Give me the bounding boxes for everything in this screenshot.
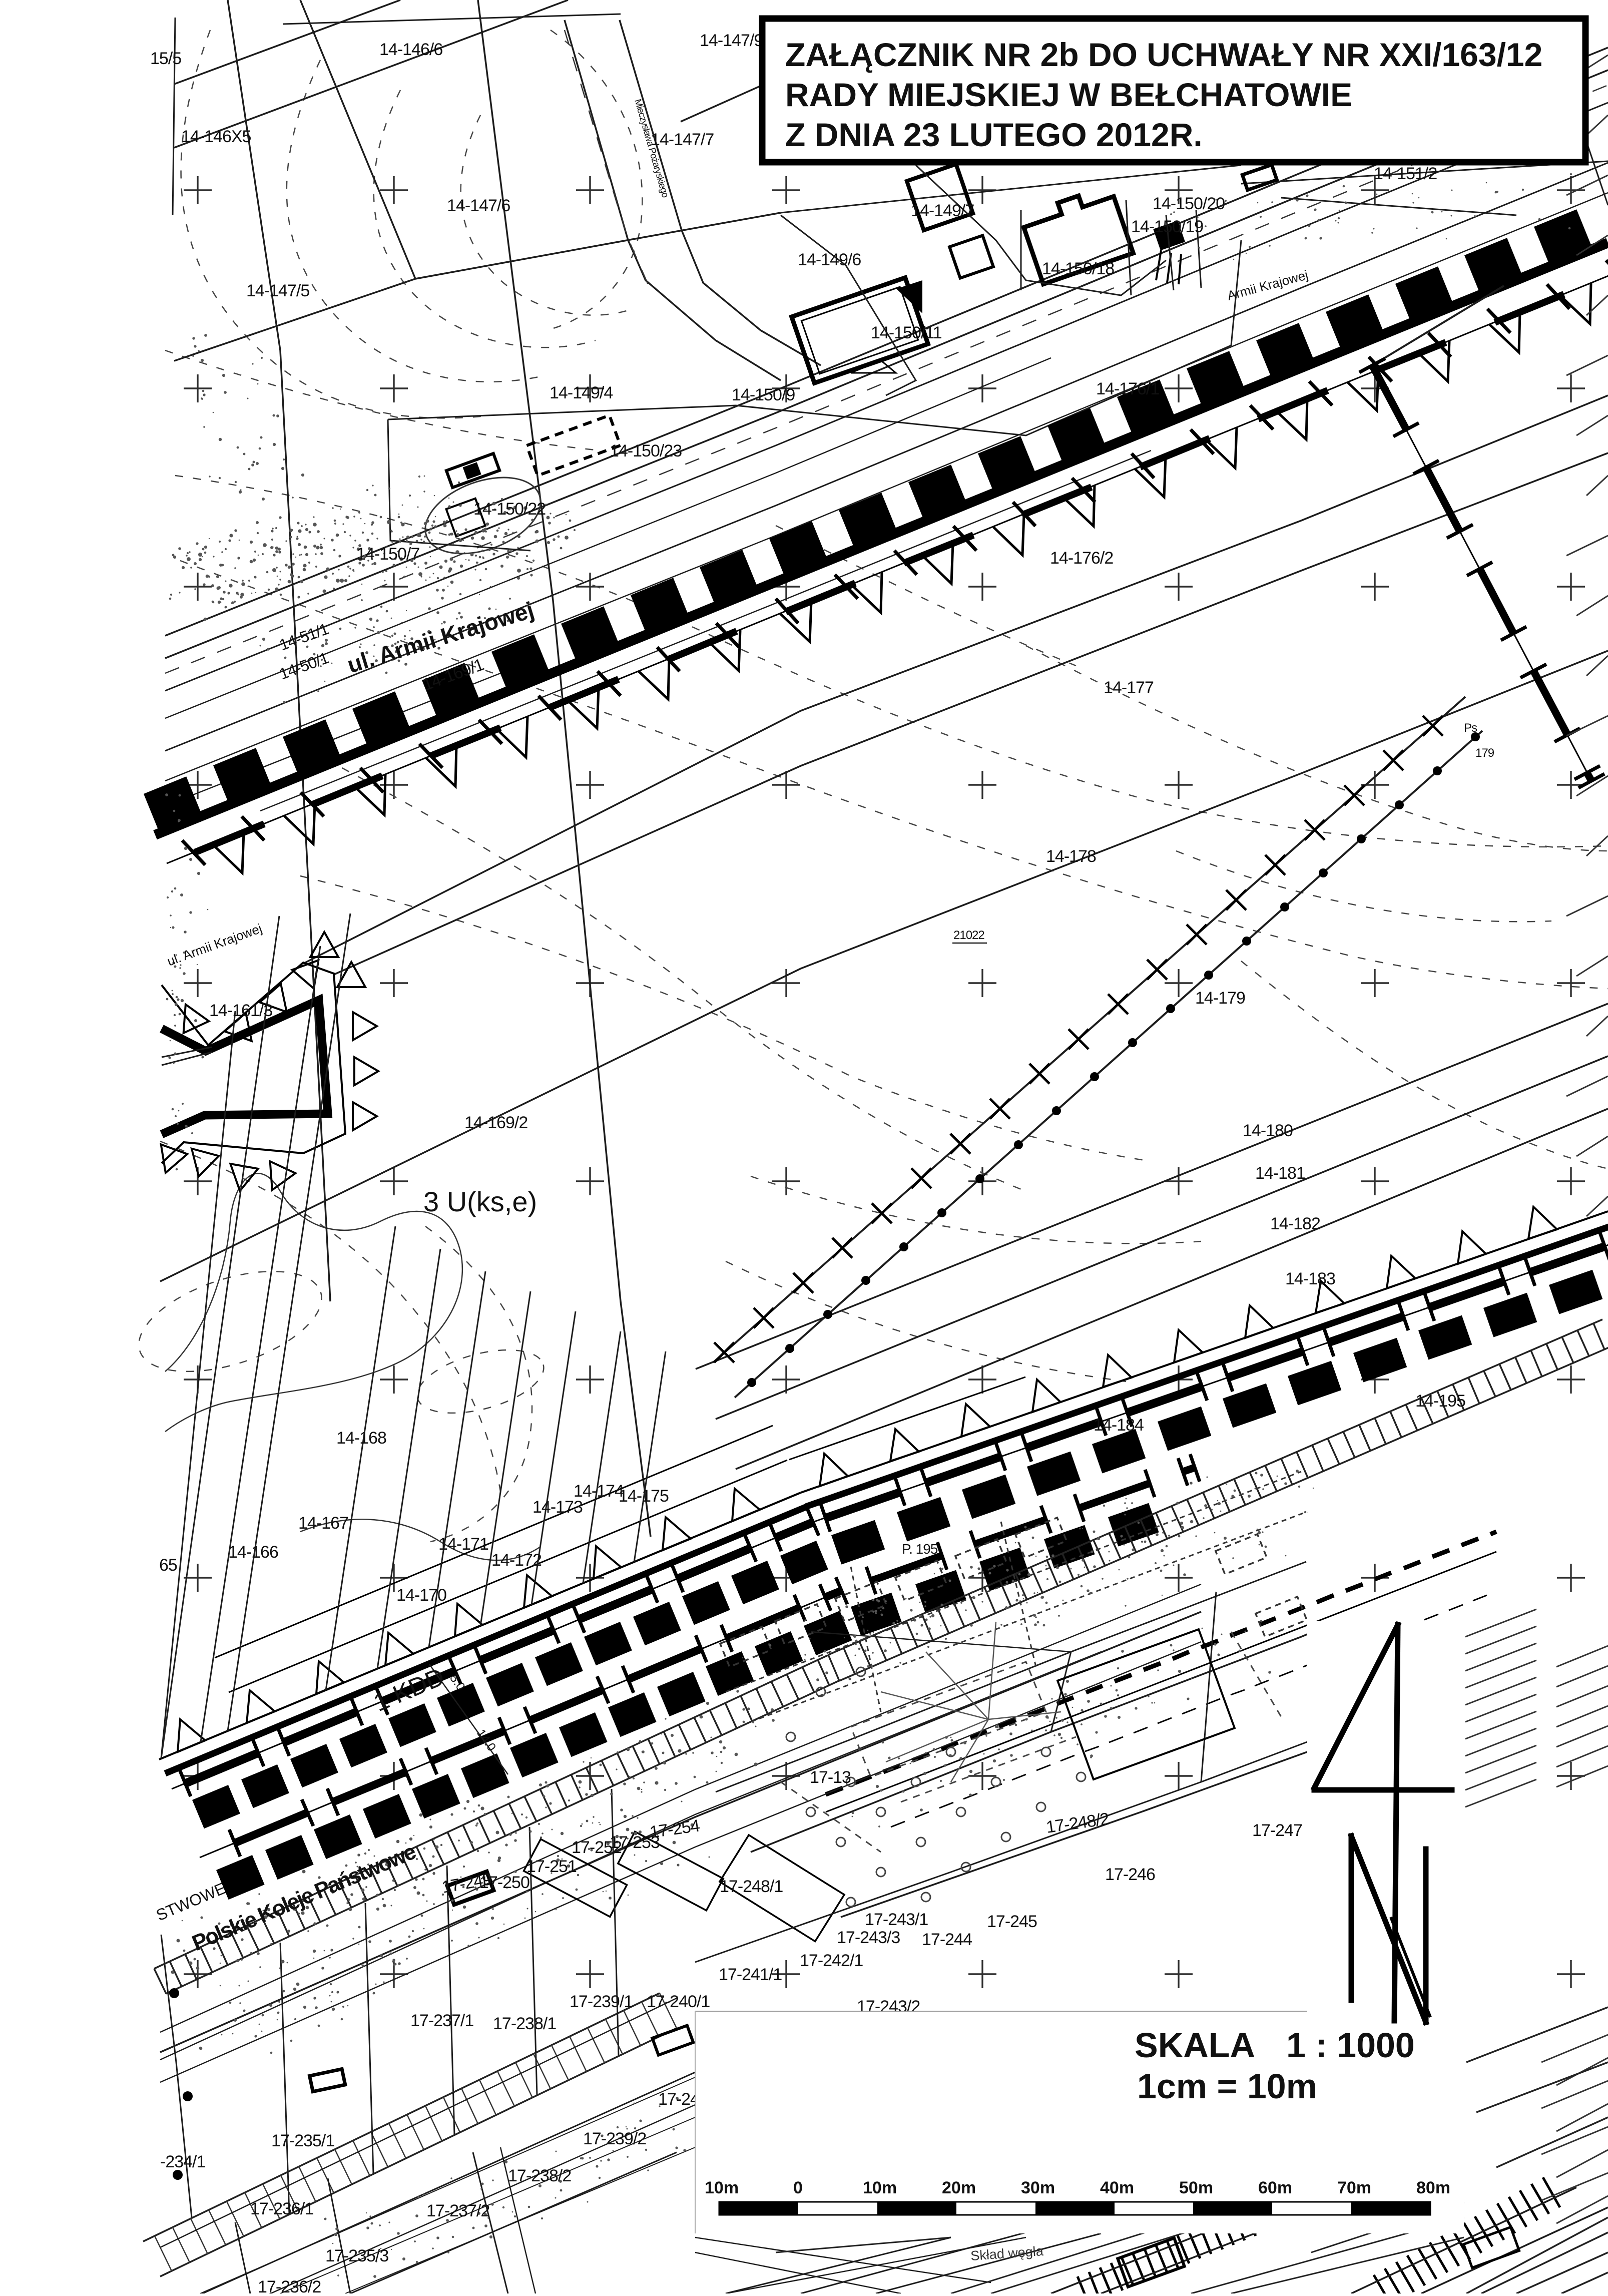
- svg-text:10m: 10m: [863, 2178, 897, 2197]
- svg-text:1cm = 10m: 1cm = 10m: [1137, 2067, 1317, 2106]
- svg-text:14-147/9: 14-147/9: [700, 31, 763, 50]
- svg-text:17-244: 17-244: [922, 1930, 972, 1949]
- svg-text:14-178: 14-178: [1046, 847, 1096, 866]
- svg-text:14-146/6: 14-146/6: [379, 40, 442, 59]
- svg-text:20m: 20m: [942, 2178, 976, 2197]
- svg-text:17-251: 17-251: [526, 1857, 577, 1876]
- svg-text:17-13: 17-13: [810, 1768, 851, 1787]
- svg-text:14-175: 14-175: [619, 1487, 669, 1506]
- svg-text:ZAŁĄCZNIK NR 2b DO UCHWAŁY NR: ZAŁĄCZNIK NR 2b DO UCHWAŁY NR XXI/163/12: [785, 36, 1542, 73]
- svg-text:14-147/6: 14-147/6: [447, 196, 510, 215]
- svg-text:0: 0: [793, 2178, 803, 2197]
- svg-text:15/5: 15/5: [150, 49, 181, 68]
- svg-text:14-182: 14-182: [1270, 1214, 1320, 1233]
- svg-text:14-174: 14-174: [574, 1482, 624, 1501]
- svg-text:14-179: 14-179: [1195, 989, 1245, 1008]
- svg-text:SKALA: SKALA: [1135, 2026, 1255, 2065]
- svg-text:14-172: 14-172: [491, 1551, 542, 1570]
- svg-text:17-243/3: 17-243/3: [837, 1928, 900, 1947]
- svg-text:14-149/6: 14-149/6: [798, 250, 861, 269]
- svg-text:14-195: 14-195: [1415, 1392, 1465, 1411]
- svg-text:14-177: 14-177: [1104, 678, 1154, 697]
- svg-text:80m: 80m: [1416, 2178, 1450, 2197]
- svg-text:14-149/4: 14-149/4: [550, 383, 613, 402]
- svg-text:14-167: 14-167: [298, 1514, 348, 1533]
- svg-text:17-240/1: 17-240/1: [647, 1992, 710, 2011]
- svg-text:14-150/20: 14-150/20: [1153, 194, 1225, 213]
- svg-text:17-250: 17-250: [479, 1873, 529, 1892]
- svg-text:17-239/1: 17-239/1: [570, 1992, 633, 2011]
- svg-text:17-247: 17-247: [1252, 1821, 1302, 1840]
- svg-text:17-248/1: 17-248/1: [720, 1877, 783, 1896]
- svg-text:RADY MIEJSKIEJ W BEŁCHATOWIE: RADY MIEJSKIEJ W BEŁCHATOWIE: [785, 76, 1352, 113]
- svg-text:14-183: 14-183: [1285, 1269, 1335, 1288]
- svg-text:14-147/7: 14-147/7: [651, 130, 714, 149]
- svg-text:14-151/2: 14-151/2: [1374, 164, 1437, 183]
- svg-text:14-180: 14-180: [1243, 1121, 1293, 1140]
- svg-text:14-171: 14-171: [438, 1535, 488, 1554]
- svg-text:14-146X5: 14-146X5: [181, 127, 251, 146]
- svg-text:17-237/1: 17-237/1: [410, 2011, 473, 2030]
- svg-text:14-150/19: 14-150/19: [1131, 217, 1203, 236]
- svg-text:14-166: 14-166: [228, 1543, 278, 1562]
- svg-text:14-161/3: 14-161/3: [209, 1001, 272, 1020]
- svg-text:14-149/7: 14-149/7: [911, 201, 974, 220]
- svg-text:14-170: 14-170: [396, 1586, 446, 1605]
- svg-text:70m: 70m: [1337, 2178, 1371, 2197]
- svg-text:17-241/1: 17-241/1: [719, 1965, 782, 1984]
- svg-text:14-150/7: 14-150/7: [356, 545, 419, 564]
- svg-text:17-236/2: 17-236/2: [258, 2277, 321, 2293]
- svg-text:Ps: Ps: [1464, 721, 1477, 735]
- svg-text:14-150/18: 14-150/18: [1042, 259, 1114, 278]
- svg-text:17-239/2: 17-239/2: [583, 2129, 646, 2148]
- svg-text:14-169/2: 14-169/2: [464, 1113, 527, 1132]
- svg-text:17-238/2: 17-238/2: [508, 2166, 571, 2185]
- svg-text:50m: 50m: [1179, 2178, 1213, 2197]
- svg-text:21022: 21022: [953, 929, 984, 942]
- svg-text:40m: 40m: [1100, 2178, 1134, 2197]
- svg-text:17-238/1: 17-238/1: [493, 2014, 556, 2033]
- svg-text:17-235/3: 17-235/3: [325, 2246, 388, 2265]
- svg-text:65: 65: [159, 1556, 177, 1575]
- svg-text:14-176/2: 14-176/2: [1050, 549, 1113, 568]
- svg-text:30m: 30m: [1021, 2178, 1055, 2197]
- svg-text:14-181: 14-181: [1255, 1164, 1305, 1183]
- svg-text:17-243/1: 17-243/1: [865, 1910, 928, 1929]
- svg-text:10m: 10m: [705, 2178, 739, 2197]
- svg-text:14-184: 14-184: [1094, 1416, 1144, 1435]
- svg-text:14-168: 14-168: [336, 1429, 386, 1448]
- svg-text:179: 179: [1475, 746, 1494, 760]
- svg-text:14-150/23: 14-150/23: [610, 441, 682, 461]
- svg-text:17-235/1: 17-235/1: [271, 2131, 334, 2150]
- svg-text:14-176/1: 14-176/1: [1096, 379, 1159, 398]
- svg-text:17-246: 17-246: [1105, 1865, 1155, 1884]
- svg-text:14-150/11: 14-150/11: [871, 323, 942, 342]
- svg-text:17-242/1: 17-242/1: [800, 1951, 863, 1970]
- svg-text:3 U(ks,e): 3 U(ks,e): [423, 1186, 537, 1217]
- svg-text:Z DNIA 23 LUTEGO 2012R.: Z DNIA 23 LUTEGO 2012R.: [785, 116, 1203, 153]
- svg-text:14-147/5: 14-147/5: [246, 281, 309, 300]
- svg-text:14-150/9: 14-150/9: [732, 385, 795, 404]
- svg-text:17-237/2: 17-237/2: [426, 2201, 489, 2220]
- svg-text:17-236/1: 17-236/1: [250, 2199, 313, 2218]
- svg-text:1 : 1000: 1 : 1000: [1286, 2026, 1415, 2065]
- svg-text:P. 195: P. 195: [902, 1541, 938, 1557]
- svg-text:60m: 60m: [1258, 2178, 1292, 2197]
- svg-text:-234/1: -234/1: [160, 2152, 205, 2171]
- svg-text:14-150/22: 14-150/22: [473, 500, 546, 519]
- svg-text:17-245: 17-245: [987, 1912, 1037, 1931]
